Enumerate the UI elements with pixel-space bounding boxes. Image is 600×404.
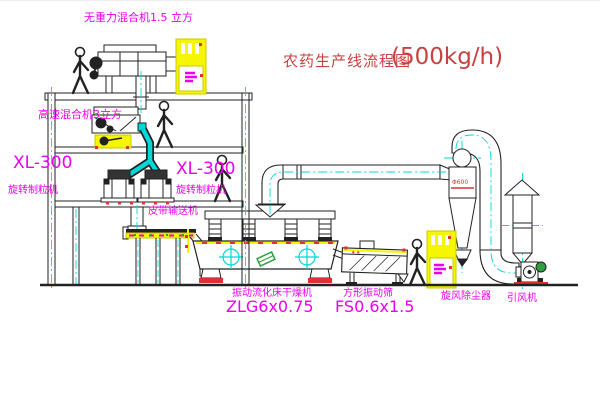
- label-dryer-model: ZLG6x0.75: [226, 299, 314, 316]
- feed-drop-pipe: [128, 205, 146, 232]
- label-cyclone-size: Φ600: [452, 180, 468, 186]
- label-screen-model: FS0.6x1.5: [335, 299, 414, 316]
- label-granulator-left-model: XL-300: [13, 155, 72, 173]
- label-cyclone: 旋风除尘器: [441, 292, 491, 303]
- gravity-mixer: [90, 45, 184, 113]
- control-cabinet-right: [427, 231, 456, 288]
- person-figure-ground: [410, 240, 425, 286]
- label-fan: 引风机: [507, 294, 537, 305]
- person-figure-roof: [73, 48, 88, 94]
- label-gravity-mixer: 无重力混合机1.5 立方: [84, 12, 193, 24]
- dryer-bellows: [209, 219, 331, 239]
- vibrating-screen: [333, 241, 408, 285]
- label-granulator-left-name: 旋转制粒机: [8, 186, 58, 197]
- label-high-speed-mixer: 高速混合机3立方: [38, 109, 122, 121]
- label-granulator-mid-name: 旋转制粒机: [176, 186, 226, 197]
- control-cabinet-top: [176, 39, 206, 94]
- cad-flow-diagram: 无重力混合机1.5 立方 农药生产线流程图 (500kg/h) 高速混合机3立方…: [0, 0, 600, 404]
- granulators: [101, 170, 174, 205]
- label-belt-conveyor: 皮带输送机: [148, 207, 198, 218]
- person-figure-floor2: [157, 102, 172, 148]
- label-granulator-mid-model: XL-300: [176, 161, 235, 179]
- exhaust-duct: [256, 165, 452, 217]
- diagram-title-capacity: (500kg/h): [391, 45, 503, 69]
- fluid-bed-dryer: [193, 211, 338, 283]
